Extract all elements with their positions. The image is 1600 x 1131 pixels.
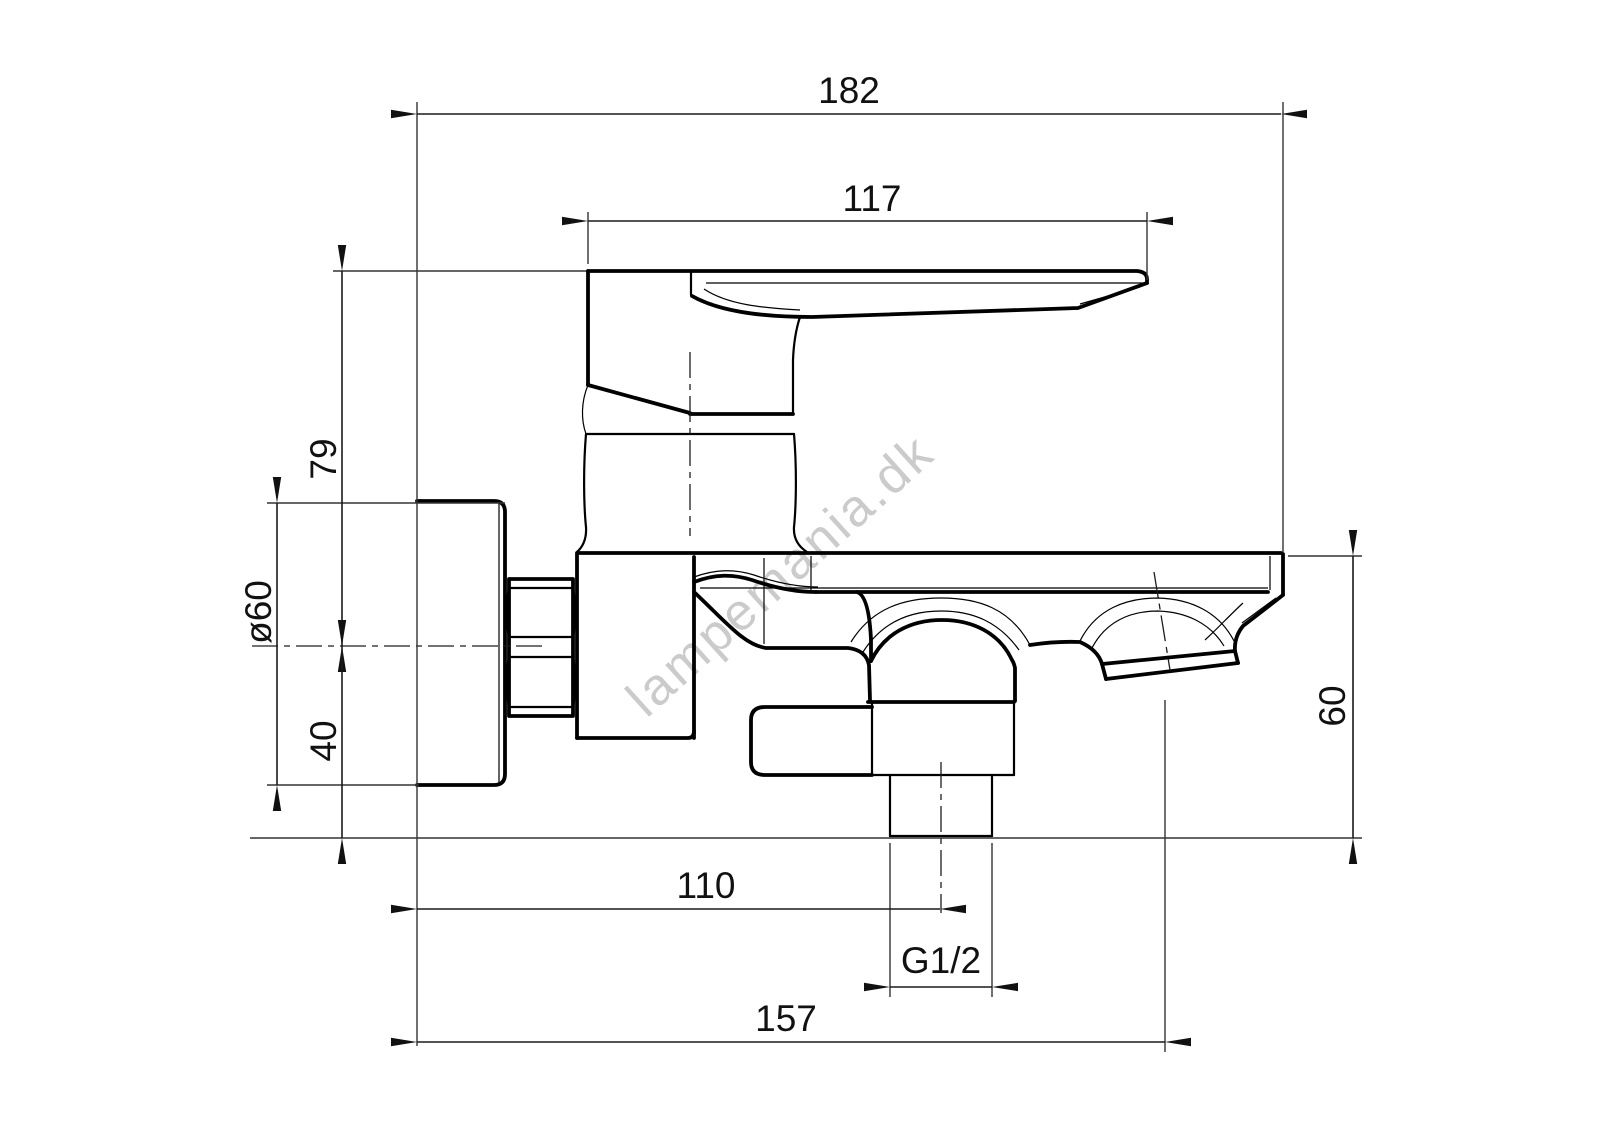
lever-tip-chamfer — [1080, 287, 1140, 304]
dimension-79: 79 — [303, 271, 344, 646]
dimension-label-157: 157 — [755, 998, 817, 1039]
dimension-40: 40 — [303, 646, 344, 838]
arch1-arc — [871, 620, 1015, 701]
dimension-182: 182 — [417, 70, 1281, 114]
lever-underside — [692, 283, 1147, 317]
spout-tip-centerline — [1154, 572, 1170, 670]
arch1-arc-inner — [863, 611, 1019, 652]
dimension-117: 117 — [588, 178, 1147, 221]
watermark-text: lampemania.dk — [616, 423, 946, 728]
aerator-left-cap — [1102, 664, 1106, 679]
flange-outline — [417, 501, 505, 785]
technical-drawing-canvas: lampemania.dk — [0, 0, 1600, 1131]
spout-tip-slant-inner — [1242, 598, 1276, 623]
shower-hose-holder — [751, 707, 872, 775]
lever-top-edge — [588, 271, 1147, 283]
dimension-label-40: 40 — [303, 720, 344, 761]
dimension-label-110: 110 — [677, 865, 736, 906]
nut-facet-arcs — [507, 588, 576, 707]
lever-grip-bottom-slant — [588, 385, 690, 413]
block-bottom — [577, 731, 694, 738]
hex-nut — [507, 579, 576, 716]
body-left-edge — [577, 434, 586, 552]
arch2-arc-inner — [1091, 611, 1224, 650]
holder-outline — [751, 707, 872, 775]
lever-grip-right-edge — [793, 317, 800, 413]
dimension-157: 157 — [417, 998, 1165, 1042]
wall-flange — [417, 501, 505, 785]
dimension-label-60: 60 — [1312, 685, 1353, 726]
technical-drawing-page: lampemania.dk — [0, 0, 1600, 1131]
aerator-bottom — [1106, 663, 1238, 679]
saddle — [1030, 642, 1102, 664]
aerator-right-cap — [1235, 651, 1238, 663]
dimension-label-thread: G1/2 — [901, 940, 981, 981]
dimension-60: 60 — [1312, 556, 1353, 838]
dimension-110: 110 — [417, 865, 940, 909]
dimension-flange-diameter: ø60 — [238, 503, 279, 785]
dimension-thread: G1/2 — [890, 940, 992, 987]
dimension-label-79: 79 — [303, 438, 344, 479]
collar-left-curve — [582, 385, 588, 434]
nut-outline — [509, 579, 573, 716]
faucet-outline — [417, 271, 1283, 836]
dimension-label-117: 117 — [843, 178, 902, 219]
dimension-label-flange-diameter: ø60 — [238, 580, 279, 644]
lever-handle — [588, 271, 1147, 413]
dimension-label-182: 182 — [818, 70, 880, 111]
